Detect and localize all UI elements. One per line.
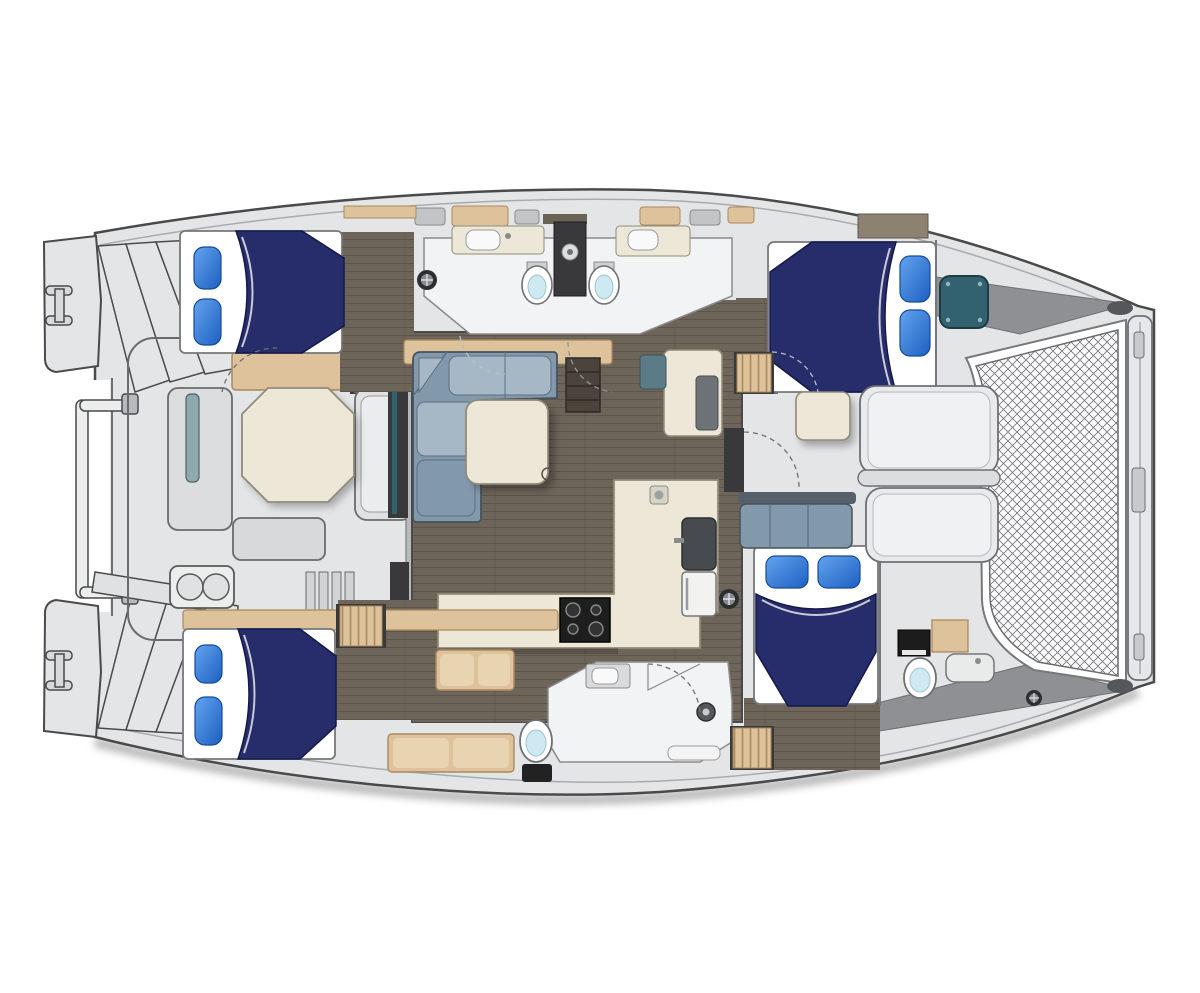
round-hatch-icon — [417, 270, 437, 290]
faucet-icon — [505, 233, 511, 239]
sink-left — [466, 230, 500, 250]
shower-stall — [554, 222, 586, 296]
head-sink — [592, 668, 618, 684]
pillow — [194, 299, 221, 345]
stbd-fwd-companionway-steps — [730, 726, 774, 770]
toilet — [589, 262, 619, 304]
pillow — [818, 556, 860, 588]
head-cabinet — [932, 620, 968, 652]
round-hatch-icon — [719, 589, 739, 609]
toilet — [520, 720, 552, 782]
port-bow-roller — [1107, 301, 1133, 315]
cockpit-table — [242, 388, 358, 507]
stove-icon — [560, 598, 610, 642]
cockpit-wetbar — [170, 566, 234, 608]
pillow — [195, 697, 222, 745]
nav-seat — [640, 355, 666, 389]
port-aft-cabin-floor — [338, 232, 414, 302]
port-aft-corridor-floor — [340, 296, 414, 392]
starboard-bow-roller — [1107, 679, 1133, 693]
port-fwd-companionway-steps — [734, 352, 774, 394]
shower-bench — [668, 746, 720, 760]
faucet-icon — [975, 658, 981, 664]
pillow — [900, 256, 930, 302]
pillow — [766, 556, 808, 588]
fwd-deck-divider — [858, 470, 1000, 486]
sink-right — [628, 230, 658, 250]
floorplan-canvas — [0, 0, 1200, 993]
pillow — [900, 310, 930, 356]
fridge — [682, 572, 716, 616]
bow-crossbeam — [1128, 316, 1152, 680]
instrument-panel-icon — [696, 376, 718, 430]
stbd-aft-companionway-steps — [336, 604, 386, 648]
head-sink — [946, 654, 994, 682]
saloon-steps-down — [566, 358, 600, 412]
port-aft-shelf — [344, 206, 416, 218]
port-fwd-shelf — [858, 214, 928, 238]
round-hatch-icon — [1026, 690, 1042, 706]
port-forward-cabin-bed — [768, 242, 936, 392]
fwd-cockpit-bench — [738, 492, 856, 548]
fwd-cockpit-table — [796, 392, 854, 446]
sink-faucet-icon — [674, 538, 684, 543]
port-aft-cabin-bed — [180, 231, 344, 353]
pillow — [194, 247, 221, 289]
toilet — [904, 658, 936, 698]
galley-sink — [682, 518, 716, 570]
starboard-aft-cabin-bed — [183, 629, 336, 759]
fwd-door-opening — [724, 428, 744, 492]
duvet — [770, 242, 896, 392]
starboard-forward-cabin-bed — [754, 546, 878, 706]
cockpit-aft-bench — [232, 352, 352, 390]
flush-pump — [522, 764, 552, 782]
catamaran-floorplan — [0, 0, 1200, 993]
saloon-table — [466, 400, 554, 490]
cockpit-side-bench — [168, 388, 232, 530]
duvet — [238, 629, 336, 759]
cockpit-fwd-bench — [233, 518, 325, 560]
pillow — [195, 645, 222, 683]
davit-post — [186, 394, 199, 482]
toilet — [522, 262, 552, 304]
